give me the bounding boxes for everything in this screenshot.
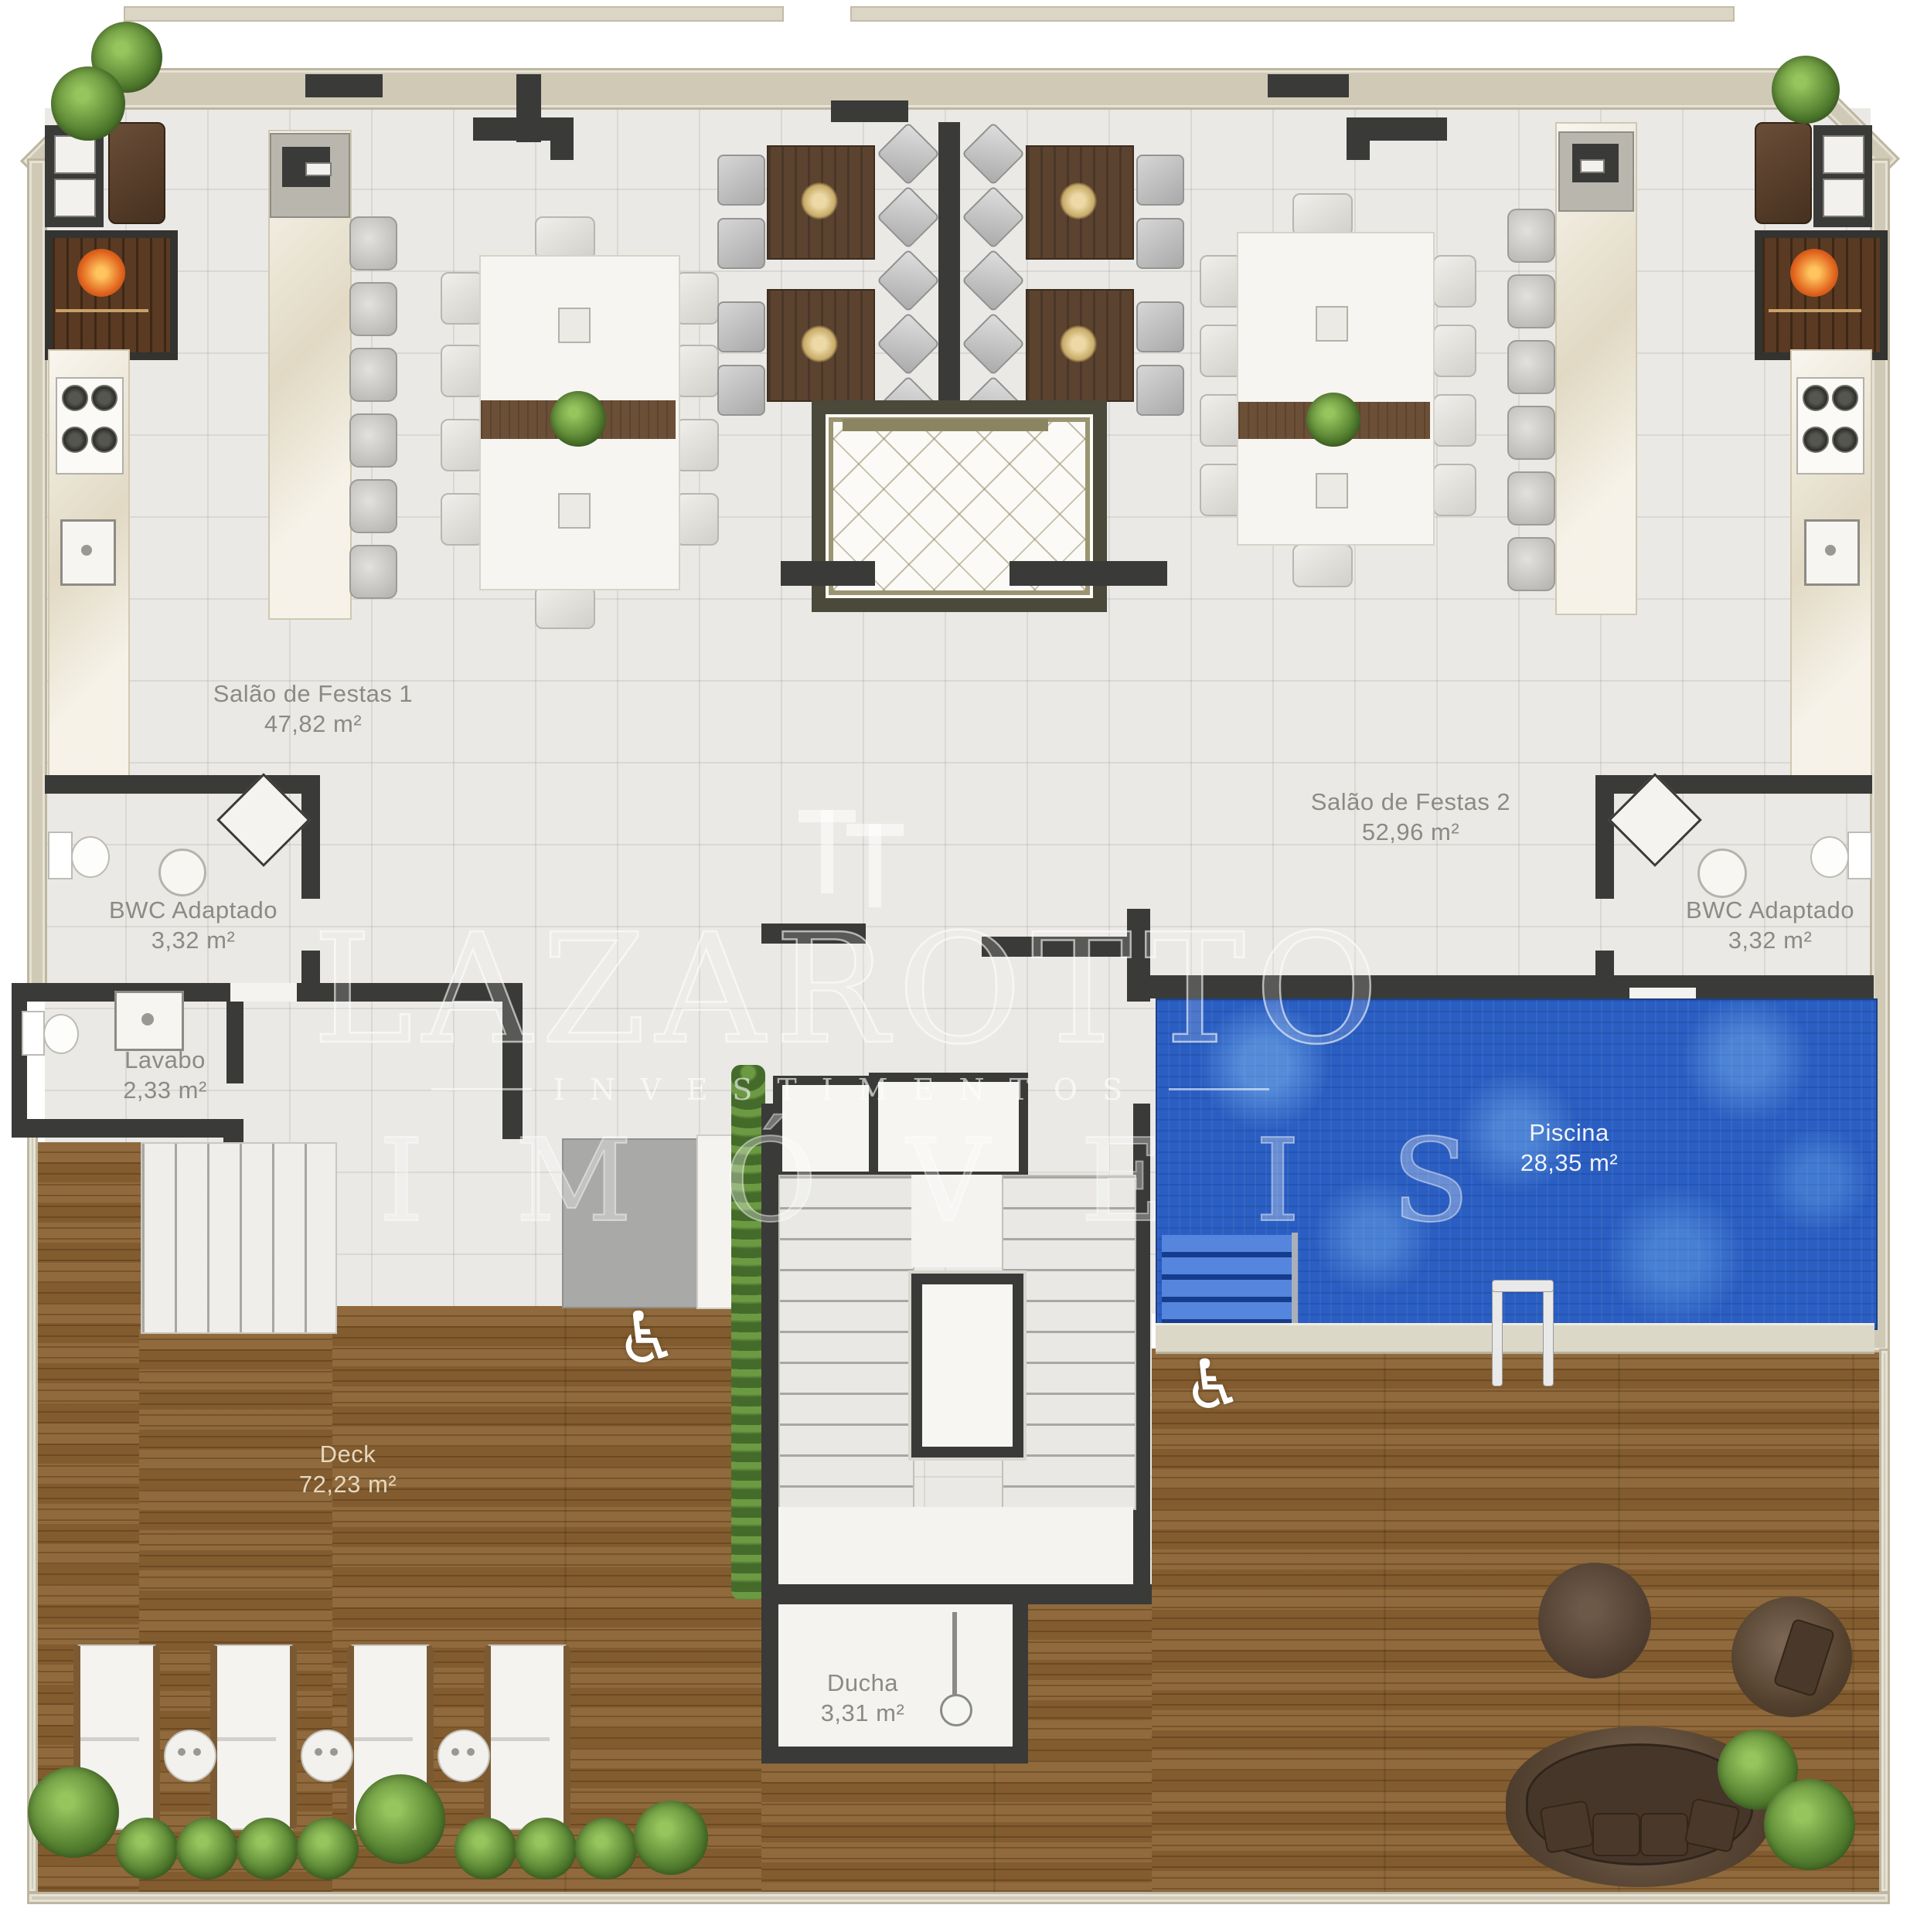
chair bbox=[717, 155, 765, 206]
stool bbox=[1507, 537, 1555, 591]
cabinet-sink bbox=[54, 179, 96, 217]
centerpiece bbox=[801, 325, 838, 362]
shrub bbox=[634, 1801, 708, 1875]
dining-chair bbox=[1292, 193, 1353, 236]
lavabo-wall bbox=[12, 983, 27, 1138]
deck-edge-bottom bbox=[27, 1892, 1890, 1904]
wall-l bbox=[1347, 117, 1370, 160]
shrub bbox=[28, 1767, 119, 1858]
room-name: Ducha bbox=[801, 1668, 924, 1698]
room-label-deck: Deck 72,23 m² bbox=[278, 1439, 417, 1499]
bwc-wall bbox=[301, 775, 320, 899]
dining-chair bbox=[441, 345, 484, 397]
table-plant bbox=[1306, 393, 1360, 447]
stool bbox=[349, 479, 397, 533]
room-name: Deck bbox=[278, 1439, 417, 1469]
toilet bbox=[22, 1011, 45, 1056]
stair-flight bbox=[778, 1175, 914, 1510]
chair bbox=[717, 365, 765, 416]
room-name: Salão de Festas 2 bbox=[1283, 787, 1538, 817]
pool-rail bbox=[1292, 1233, 1298, 1329]
cabinet-sink bbox=[1823, 179, 1864, 217]
island-appliance bbox=[270, 133, 350, 218]
dining-chair bbox=[535, 586, 595, 629]
shrub bbox=[1764, 1779, 1855, 1870]
centerpiece bbox=[1060, 325, 1097, 362]
island-appliance bbox=[1558, 131, 1634, 212]
dining-chair bbox=[535, 216, 595, 260]
partition-wall bbox=[502, 983, 523, 1139]
shrub bbox=[575, 1818, 637, 1879]
stool bbox=[1507, 471, 1555, 526]
toilet bbox=[1810, 836, 1849, 878]
roof-edge bbox=[124, 6, 784, 22]
fire-icon bbox=[77, 249, 125, 297]
room-name: Piscina bbox=[1461, 1117, 1677, 1148]
shrub bbox=[176, 1818, 238, 1879]
room-area: 28,35 m² bbox=[1461, 1148, 1677, 1178]
place-setting bbox=[558, 493, 591, 529]
room-area: 47,82 m² bbox=[186, 709, 441, 739]
grill-bar bbox=[1769, 309, 1861, 312]
room-label-lavabo: Lavabo 2,33 m² bbox=[97, 1045, 233, 1105]
stool bbox=[349, 413, 397, 468]
stool bbox=[1507, 274, 1555, 328]
pool-coping bbox=[1156, 1323, 1874, 1354]
dining-chair bbox=[1292, 544, 1353, 587]
door-opening bbox=[230, 983, 297, 1002]
stove-cooktop bbox=[56, 377, 124, 474]
cabinet-sink bbox=[54, 135, 96, 174]
deck-edge-left bbox=[27, 1128, 38, 1893]
stove-cooktop bbox=[1796, 377, 1864, 474]
round-chair bbox=[1731, 1597, 1852, 1717]
chair bbox=[717, 218, 765, 269]
utility-room bbox=[869, 1073, 1028, 1181]
dining-chair bbox=[441, 419, 484, 471]
round-pouf bbox=[1538, 1563, 1651, 1679]
sun-lounger bbox=[484, 1645, 570, 1830]
fire-icon bbox=[1790, 249, 1838, 297]
table-plant bbox=[550, 391, 606, 447]
wheelchair-icon: ♿ bbox=[615, 1303, 679, 1374]
partition-wall bbox=[320, 983, 504, 1002]
floor-plan: ♿ ♿ Salão de Festas 1 47,82 m² Salão de … bbox=[0, 0, 1917, 1932]
place-setting bbox=[558, 308, 591, 343]
deck-area bbox=[761, 1762, 1152, 1893]
stool bbox=[1507, 340, 1555, 394]
toilet bbox=[43, 1014, 79, 1054]
stairwell-wall bbox=[761, 1104, 778, 1587]
lavabo-wall bbox=[12, 1119, 243, 1138]
dining-chair bbox=[1433, 255, 1476, 308]
room-name: BWC Adaptado bbox=[93, 895, 294, 925]
dining-chair bbox=[441, 493, 484, 546]
dining-chair bbox=[1433, 325, 1476, 377]
toilet bbox=[1847, 832, 1872, 879]
shrub bbox=[297, 1818, 359, 1879]
dining-chair bbox=[676, 493, 719, 546]
chair bbox=[717, 301, 765, 352]
chair bbox=[1136, 301, 1184, 352]
corridor-wall bbox=[982, 937, 1150, 957]
chair bbox=[1136, 218, 1184, 269]
room-label-bwc-right: BWC Adaptado 3,32 m² bbox=[1670, 895, 1871, 955]
toilet bbox=[71, 836, 110, 878]
dining-chair bbox=[1433, 464, 1476, 516]
toilet bbox=[48, 832, 73, 879]
ducha-wall bbox=[761, 1747, 1028, 1764]
pool-ladder bbox=[1492, 1283, 1503, 1386]
dining-chair bbox=[676, 345, 719, 397]
stair-landing bbox=[911, 1175, 1002, 1267]
sun-lounger bbox=[210, 1645, 297, 1830]
shrub bbox=[356, 1774, 445, 1864]
stool bbox=[1507, 406, 1555, 460]
chair bbox=[1136, 365, 1184, 416]
shrub bbox=[455, 1818, 516, 1879]
room-area: 3,31 m² bbox=[801, 1698, 924, 1728]
place-setting bbox=[1316, 306, 1348, 342]
dining-chair bbox=[676, 272, 719, 325]
pool-wall bbox=[1127, 975, 1874, 998]
pool-ladder bbox=[1543, 1283, 1554, 1386]
room-label-bwc-left: BWC Adaptado 3,32 m² bbox=[93, 895, 294, 955]
pool-steps bbox=[1162, 1235, 1296, 1326]
washbasin bbox=[114, 991, 184, 1051]
washbasin bbox=[158, 849, 206, 896]
place-setting bbox=[1316, 473, 1348, 509]
deck-stairs bbox=[141, 1142, 337, 1334]
room-label-ducha: Ducha 3,31 m² bbox=[801, 1668, 924, 1728]
tree bbox=[1772, 56, 1840, 124]
hall-wall bbox=[781, 561, 875, 586]
dining-chair bbox=[1433, 394, 1476, 447]
stair-void bbox=[911, 1274, 1023, 1458]
kitchen-sink bbox=[1804, 519, 1860, 586]
utility-room bbox=[773, 1076, 883, 1181]
dining-chair bbox=[676, 419, 719, 471]
washbasin bbox=[1697, 849, 1747, 898]
armchair bbox=[1755, 122, 1812, 224]
barbecue-grill bbox=[1755, 230, 1888, 360]
window-segment bbox=[1268, 74, 1349, 97]
cabinet-sink bbox=[1823, 135, 1864, 174]
shower-head bbox=[940, 1694, 972, 1726]
room-name: Salão de Festas 1 bbox=[186, 679, 441, 709]
hedge bbox=[731, 1065, 765, 1600]
stool bbox=[349, 282, 397, 336]
ducha-wall bbox=[761, 1584, 778, 1764]
wall-l bbox=[550, 117, 574, 160]
divider-wall bbox=[938, 122, 960, 402]
ducha-wall bbox=[1013, 1604, 1028, 1764]
stair-landing bbox=[778, 1507, 1133, 1584]
chair bbox=[1136, 155, 1184, 206]
window-segment bbox=[831, 100, 908, 122]
roof-edge bbox=[850, 6, 1735, 22]
side-table bbox=[164, 1730, 216, 1782]
shower-pole bbox=[952, 1612, 957, 1699]
barbecue-grill bbox=[45, 230, 178, 360]
kitchen-sink bbox=[60, 519, 116, 586]
room-area: 72,23 m² bbox=[278, 1469, 417, 1499]
stool bbox=[349, 545, 397, 599]
deck-edge-right bbox=[1879, 1349, 1890, 1893]
armchair bbox=[108, 122, 165, 224]
room-area: 3,32 m² bbox=[93, 925, 294, 955]
dining-chair bbox=[441, 272, 484, 325]
stool bbox=[1507, 209, 1555, 263]
pool-ladder bbox=[1492, 1280, 1554, 1292]
room-area: 52,96 m² bbox=[1283, 817, 1538, 847]
tree bbox=[51, 66, 125, 141]
room-area: 2,33 m² bbox=[97, 1075, 233, 1105]
shrub bbox=[116, 1818, 178, 1879]
corridor-wall bbox=[761, 923, 866, 944]
room-label-salao2: Salão de Festas 2 52,96 m² bbox=[1283, 787, 1538, 847]
window-segment bbox=[305, 74, 383, 97]
side-table bbox=[301, 1730, 353, 1782]
centerpiece bbox=[1060, 182, 1097, 219]
centerpiece bbox=[801, 182, 838, 219]
shrub bbox=[237, 1818, 298, 1879]
room-label-piscina: Piscina 28,35 m² bbox=[1461, 1117, 1677, 1178]
access-ramp bbox=[562, 1138, 698, 1308]
room-area: 3,32 m² bbox=[1670, 925, 1871, 955]
room-name: BWC Adaptado bbox=[1670, 895, 1871, 925]
stairwell-wall bbox=[761, 1584, 1152, 1604]
grill-bar bbox=[56, 309, 148, 312]
stool bbox=[349, 216, 397, 270]
deck-area bbox=[1028, 1600, 1152, 1764]
room-label-salao1: Salão de Festas 1 47,82 m² bbox=[186, 679, 441, 739]
bwc-wall bbox=[1595, 775, 1614, 899]
room-name: Lavabo bbox=[97, 1045, 233, 1075]
side-table bbox=[438, 1730, 490, 1782]
wheelchair-icon: ♿ bbox=[1183, 1351, 1244, 1419]
hall-wall bbox=[1010, 561, 1167, 586]
stool bbox=[349, 348, 397, 402]
shrub bbox=[515, 1818, 577, 1879]
